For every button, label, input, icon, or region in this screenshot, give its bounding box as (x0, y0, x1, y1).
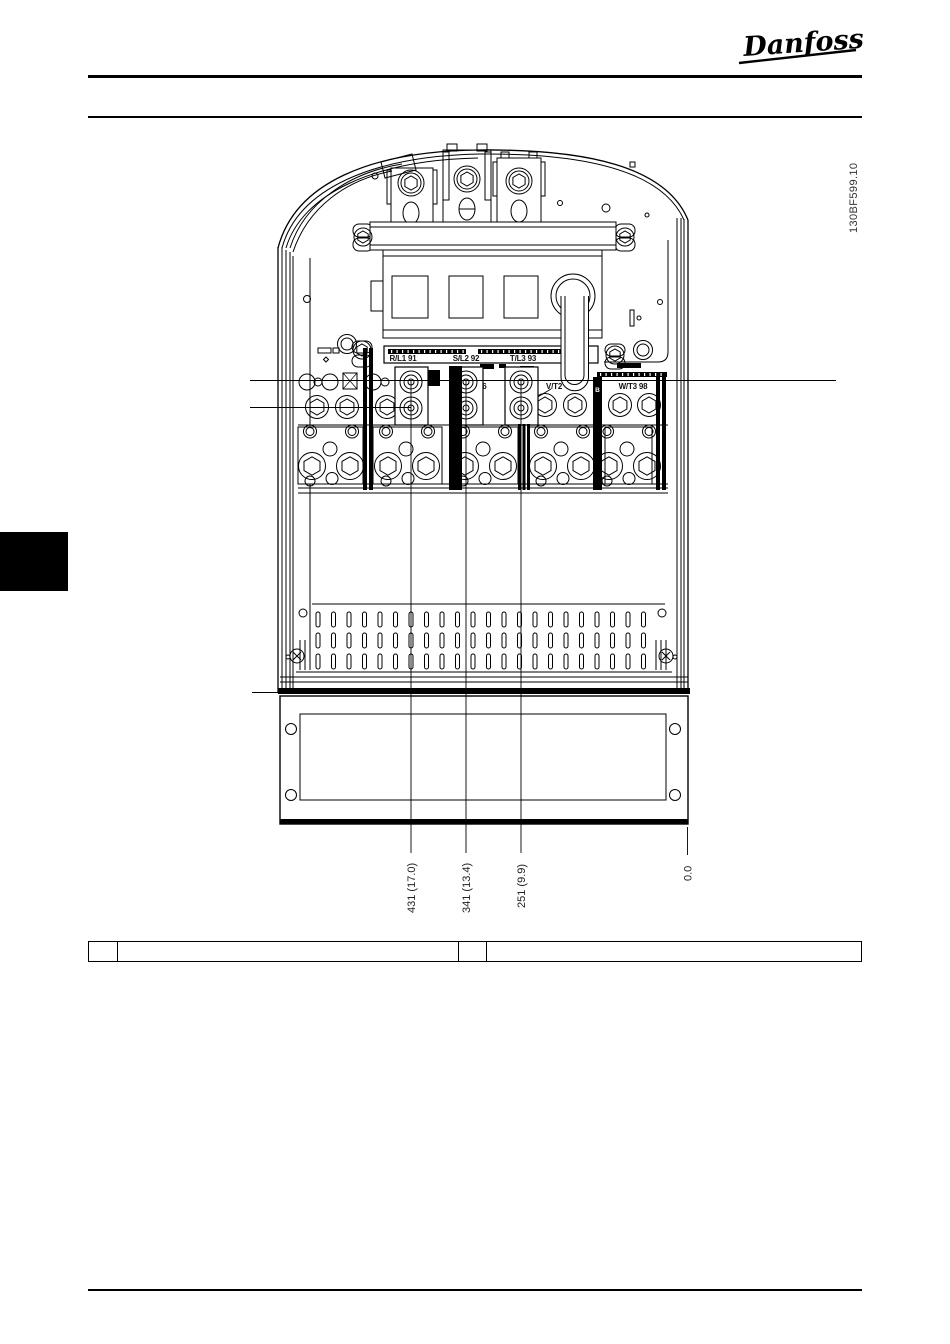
header-rule-top (88, 75, 862, 78)
mains-terminals (395, 367, 538, 425)
dimension-label-431: 431 (17.0) (406, 863, 418, 913)
gland-plate (280, 696, 688, 825)
mains-terminal-label-t: T/L3 93 (510, 354, 537, 363)
mains-terminal-label-s: S/L2 92 (453, 354, 480, 363)
mains-terminal-label-r: R/L1 91 (389, 354, 417, 363)
logo-text: Danfoss (741, 24, 864, 63)
corner-bolts (286, 649, 677, 663)
busbar-label-b: B (595, 387, 600, 394)
dimension-label-341: 341 (13.4) (461, 863, 473, 913)
legend-cell (118, 942, 459, 961)
chapter-tab (0, 532, 68, 591)
terminal-location-diagram: R/L1 91 S/L2 92 T/L3 93 U/T1 96 V/T2 W/T… (240, 130, 876, 925)
terminal-plate-r (395, 367, 428, 425)
legend-cell (459, 942, 487, 961)
dimension-label-0: 0.0 (683, 866, 695, 881)
legend-table (88, 941, 862, 962)
terminal-bolt-panels (298, 425, 668, 493)
busbar-clamp-bar (353, 222, 635, 251)
legend-cell (89, 942, 118, 961)
motor-terminal-labels: U/T1 96 V/T2 W/T3 98 (459, 382, 648, 407)
motor-terminal-label-w: W/T3 98 (619, 382, 649, 391)
dimension-label-251: 251 (9.9) (516, 864, 528, 908)
figure-code: 130BF599.10 (848, 163, 860, 233)
footer-rule (88, 1289, 862, 1291)
manual-page: Danfoss (0, 0, 950, 1344)
ventilation-slots (286, 604, 677, 670)
danfoss-logo-wordmark: Danfoss (739, 24, 865, 63)
motor-terminal-label-v: V/T2 (546, 382, 563, 391)
dimension-labels: 431 (17.0) 341 (13.4) 251 (9.9) 0.0 (406, 863, 695, 913)
busbar-bolts (398, 166, 532, 196)
terminal-plate-t (505, 367, 538, 425)
legend-cell (487, 942, 861, 961)
disconnect-handle (561, 296, 589, 391)
header-rule-bottom (88, 116, 862, 118)
danfoss-logo: Danfoss (732, 18, 872, 70)
